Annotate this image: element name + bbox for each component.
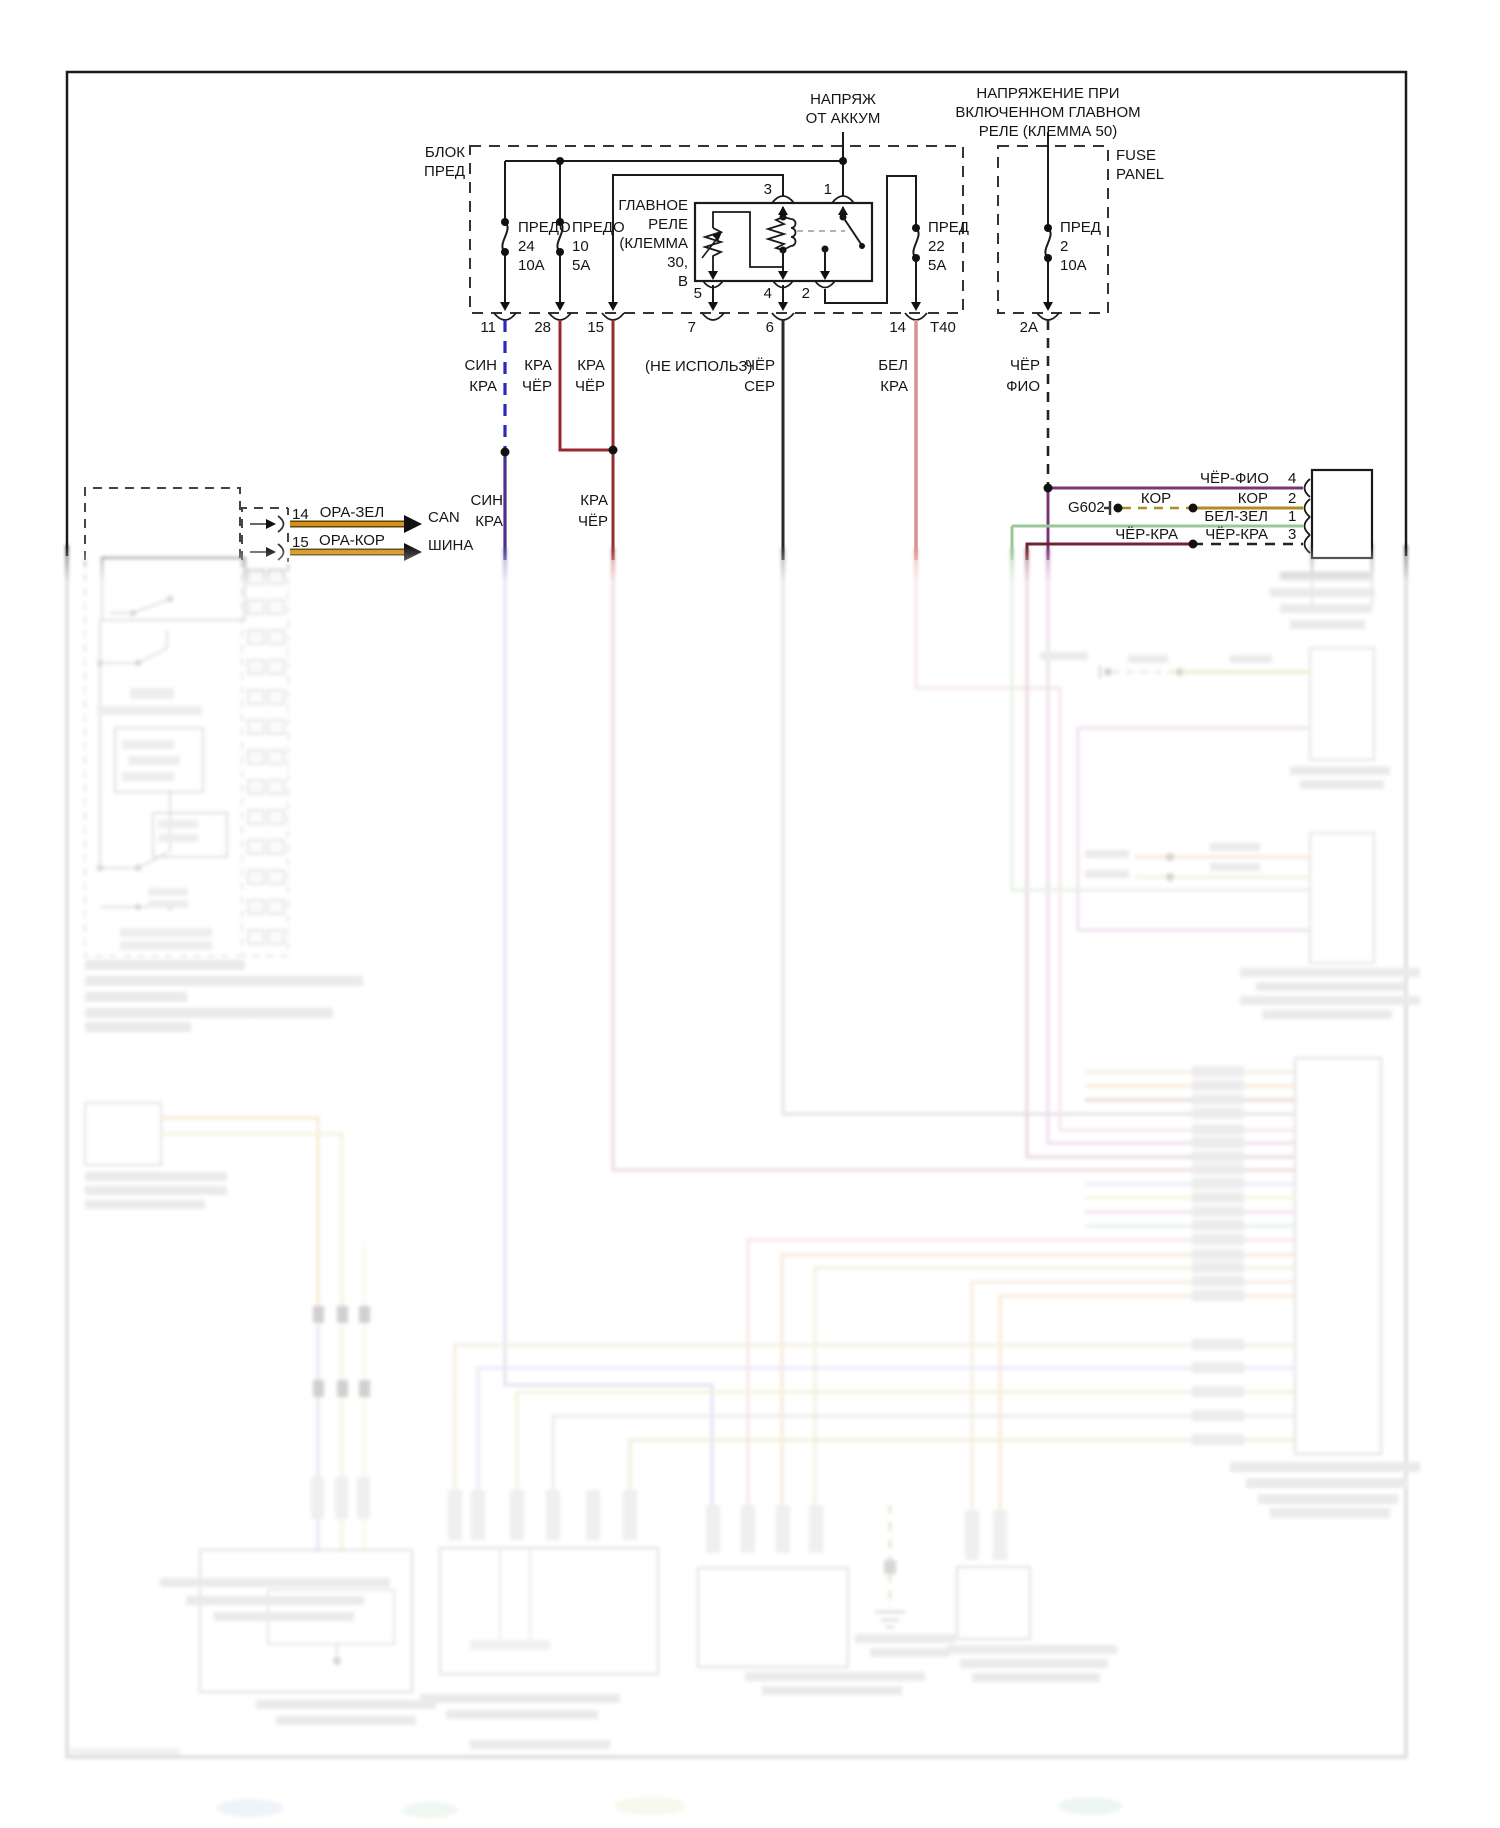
- relay-pin-1: 1: [816, 180, 832, 199]
- fuse-panel-label: FUSEPANEL: [1116, 146, 1164, 184]
- can-wire-ora-zel: ОРА-ЗЕЛ: [312, 503, 392, 522]
- ecu-row2-label-right: КОР: [1230, 489, 1268, 508]
- relay-pin-3: 3: [756, 180, 772, 199]
- fuse-24-label: ПРЕДО2410А: [518, 218, 571, 275]
- conn-pin-11: 11: [470, 318, 496, 337]
- conn-pin-14: 14: [880, 318, 906, 337]
- relay-pin-4: 4: [756, 284, 772, 303]
- labels: БЛОКПРЕД ПРЕДО2410А ПРЕДО105А ГЛАВНОЕРЕЛ…: [0, 0, 1500, 1828]
- conn-pin-7: 7: [670, 318, 696, 337]
- ecu-row1-pin: 1: [1288, 507, 1296, 526]
- conn-t40: Т40: [930, 318, 956, 337]
- wire-label-kra-chyor-2: КРАЧЁР: [562, 490, 608, 532]
- fuse-22-label: ПРЕД225А: [928, 218, 969, 275]
- relay50-voltage-label: НАПРЯЖЕНИЕ ПРИВКЛЮЧЕННОМ ГЛАВНОМРЕЛЕ (КЛ…: [948, 84, 1148, 141]
- battery-voltage-label: НАПРЯЖОТ АККУМ: [793, 90, 893, 128]
- fuse-block-title: БЛОКПРЕД: [403, 143, 465, 181]
- can-pin-14: 14: [292, 505, 309, 524]
- can-pin-15: 15: [292, 533, 309, 552]
- wire-label-chyor-fio: ЧЁРФИО: [994, 355, 1040, 397]
- g602-label: G602: [1068, 498, 1105, 517]
- can-bus-label-2: ШИНА: [428, 536, 473, 555]
- wire-label-sin-kra: СИНКРА: [451, 355, 497, 397]
- can-wire-ora-kor: ОРА-КОР: [312, 531, 392, 550]
- wire-label-kra-chyor-28: КРАЧЁР: [506, 355, 552, 397]
- fuse-2-label: ПРЕД210А: [1060, 218, 1101, 275]
- wire-label-sin-kra-2: СИНКРА: [457, 490, 503, 532]
- ecu-row1-label: БЕЛ-ЗЕЛ: [1200, 507, 1268, 526]
- wire-label-chyor-ser: ЧЁРСЕР: [729, 355, 775, 397]
- conn-pin-15: 15: [578, 318, 604, 337]
- ecu-row2-label-left: КОР: [1133, 489, 1179, 508]
- ecu-row3-pin: 3: [1288, 525, 1296, 544]
- ecu-row3-label-right: ЧЁР-КРА: [1200, 525, 1268, 544]
- wire-label-bel-kra: БЕЛКРА: [862, 355, 908, 397]
- conn-pin-2a: 2А: [1012, 318, 1038, 337]
- ecu-row4-pin: 4: [1288, 469, 1296, 488]
- ecu-row4-label: ЧЁР-ФИО: [1200, 469, 1268, 488]
- can-bus-label-1: CAN: [428, 508, 460, 527]
- relay-pin-2: 2: [794, 284, 810, 303]
- ecu-row3-label-left: ЧЁР-КРА: [1110, 525, 1178, 544]
- conn-pin-28: 28: [525, 318, 551, 337]
- ecu-row2-pin: 2: [1288, 489, 1296, 508]
- conn-pin-6: 6: [748, 318, 774, 337]
- wiring-diagram-page: БЛОКПРЕД ПРЕДО2410А ПРЕДО105А ГЛАВНОЕРЕЛ…: [0, 0, 1500, 1828]
- relay-pin-5: 5: [686, 284, 702, 303]
- wire-label-kra-chyor-15: КРАЧЁР: [559, 355, 605, 397]
- main-relay-label: ГЛАВНОЕРЕЛЕ(КЛЕММА 30,В: [598, 196, 688, 291]
